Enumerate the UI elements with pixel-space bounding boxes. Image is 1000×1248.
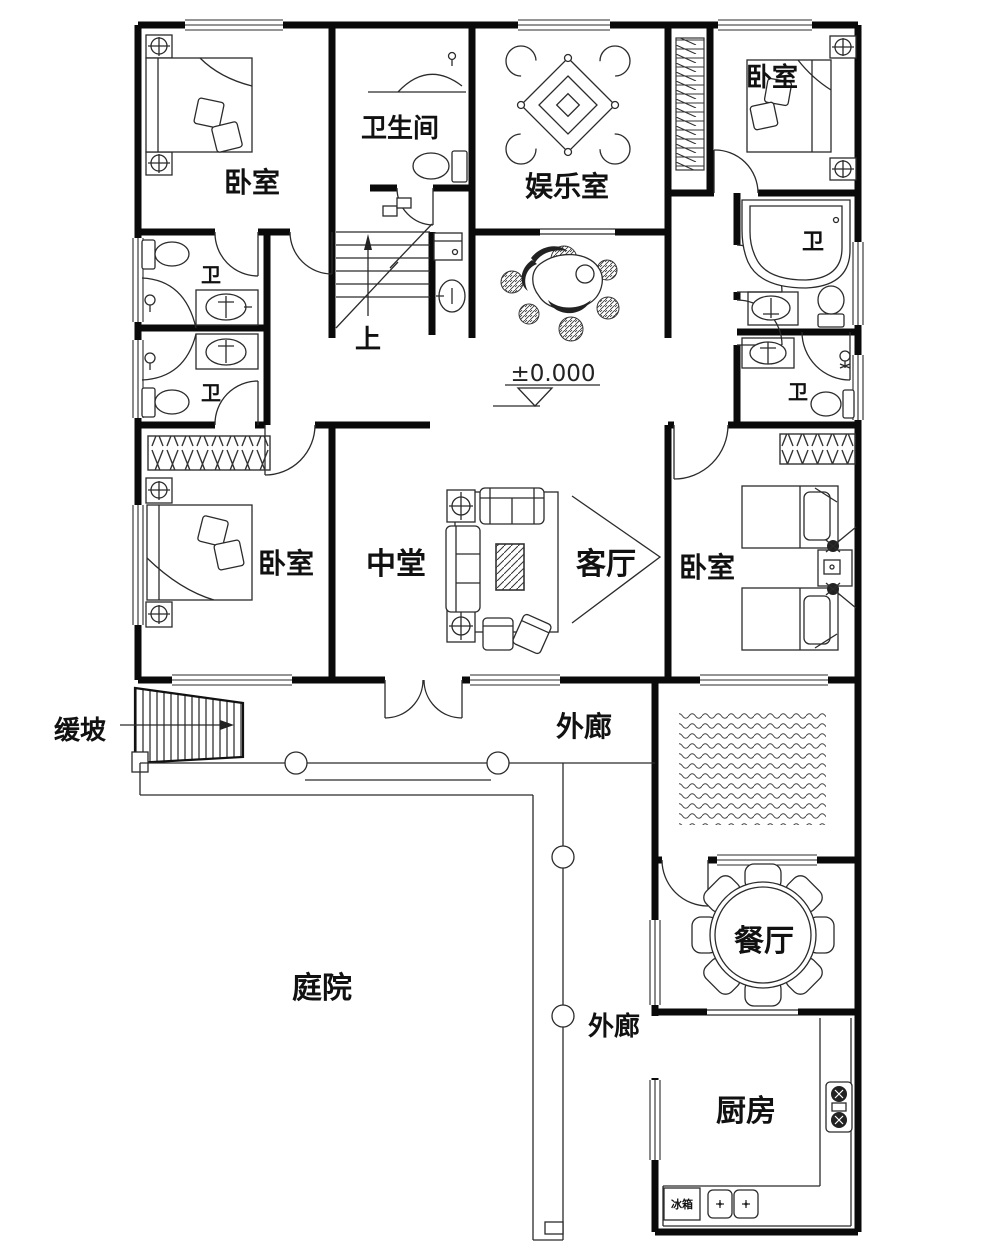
furniture-wc-left-lower [142, 334, 258, 417]
window-top-right [718, 18, 812, 32]
furniture-bedroom-top-right [747, 36, 856, 180]
threshold-entertainment [540, 229, 615, 234]
column [285, 752, 307, 774]
window-kitchen-west [648, 1080, 662, 1160]
window-left-bedroom [131, 505, 145, 625]
column [487, 752, 509, 774]
room-label-dining: 餐厅 [734, 925, 794, 958]
furniture-bedroom-mid-right [742, 434, 856, 650]
label-courtyard: 庭院 [292, 971, 352, 1005]
veranda-path [140, 752, 655, 1240]
room-label-bedroom-top-right: 卧室 [746, 62, 798, 92]
label-fridge: 冰箱 [671, 1197, 693, 1211]
room-label-wc-left-upper: 卫 [201, 265, 221, 287]
door-wc-left-lower [215, 381, 258, 425]
door-bedroom-top-left [290, 232, 332, 274]
furniture-bedroom-top-left [146, 35, 252, 175]
label-veranda-lower: 外廊 [588, 1011, 640, 1041]
column [552, 1005, 574, 1027]
door-dining [662, 860, 708, 906]
rock-tea-feature [501, 246, 619, 341]
window-right-bath-upper [851, 242, 865, 325]
window-bottom-left [172, 673, 292, 687]
elevation-marker [493, 385, 600, 406]
shower-door-wc-right [802, 332, 850, 380]
room-label-kitchen: 厨房 [716, 1095, 776, 1128]
door-wc-left-upper [215, 232, 258, 276]
label-stairs-up: 上 [355, 324, 381, 354]
furniture-bedroom-mid-left [146, 436, 270, 627]
column [552, 846, 574, 868]
label-veranda-upper: 外廊 [556, 710, 612, 742]
label-elevation: ±0.000 [510, 361, 595, 387]
laundry-alcove [434, 233, 465, 312]
furniture-entertainment [506, 46, 630, 164]
ramp [120, 688, 243, 772]
door-bedroom-mid-right [674, 425, 728, 479]
room-label-bedroom-mid-left: 卧室 [258, 547, 314, 579]
room-label-wc-right-lower: 卫 [788, 382, 808, 404]
window-bottom-right [700, 673, 828, 687]
stairs-main [336, 198, 432, 328]
room-label-living-room: 客厅 [576, 547, 636, 581]
stairs-upper-strip [676, 38, 704, 170]
door-bedroom-top-right [714, 150, 758, 193]
door-bedroom-mid-left [265, 425, 315, 475]
room-label-wc-right-upper: 卫 [802, 229, 824, 254]
window-bottom-center [470, 673, 560, 687]
threshold-dining-kitchen [707, 1010, 798, 1015]
water-feature [679, 712, 826, 825]
window-dining-west [648, 920, 662, 1005]
entrance-double-door [385, 680, 462, 718]
furniture-bath-right-upper [742, 200, 850, 327]
floor-plan-page: 卧室 卫生间 娱乐室 卧室 卫 卫 卫 卫 上 ±0.000 卧室 中堂 客厅 … [0, 0, 1000, 1248]
window-top-center [518, 18, 610, 32]
room-label-bedroom-top-left: 卧室 [224, 166, 280, 198]
window-top-left [185, 18, 283, 32]
room-label-bedroom-mid-right: 卧室 [679, 551, 735, 583]
label-ramp: 缓坡 [54, 715, 106, 745]
room-label-central-hall: 中堂 [366, 548, 426, 581]
room-label-entertainment: 娱乐室 [525, 170, 609, 202]
furniture-sofa-set [446, 488, 558, 655]
floor-plan: 卧室 卫生间 娱乐室 卧室 卫 卫 卫 卫 上 ±0.000 卧室 中堂 客厅 … [0, 0, 1000, 1248]
furniture-wc-left-upper [142, 240, 258, 328]
room-label-wc-left-lower: 卫 [201, 383, 221, 405]
room-label-bathroom: 卫生间 [361, 113, 439, 143]
